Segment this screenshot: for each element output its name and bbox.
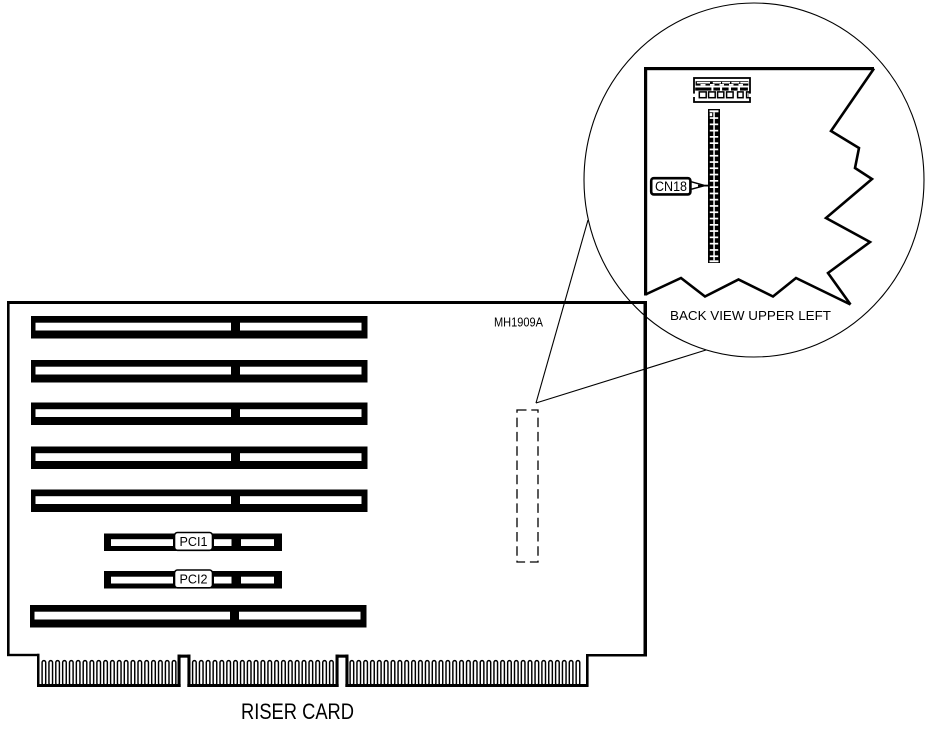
svg-text:PCI1: PCI1 [180, 535, 208, 549]
svg-text:RISER CARD: RISER CARD [241, 699, 354, 724]
svg-text:MH1909A: MH1909A [494, 316, 544, 330]
svg-text:PCI2: PCI2 [180, 573, 208, 587]
svg-text:BACK VIEW UPPER LEFT: BACK VIEW UPPER LEFT [670, 308, 831, 323]
svg-text:CN18: CN18 [655, 179, 687, 194]
